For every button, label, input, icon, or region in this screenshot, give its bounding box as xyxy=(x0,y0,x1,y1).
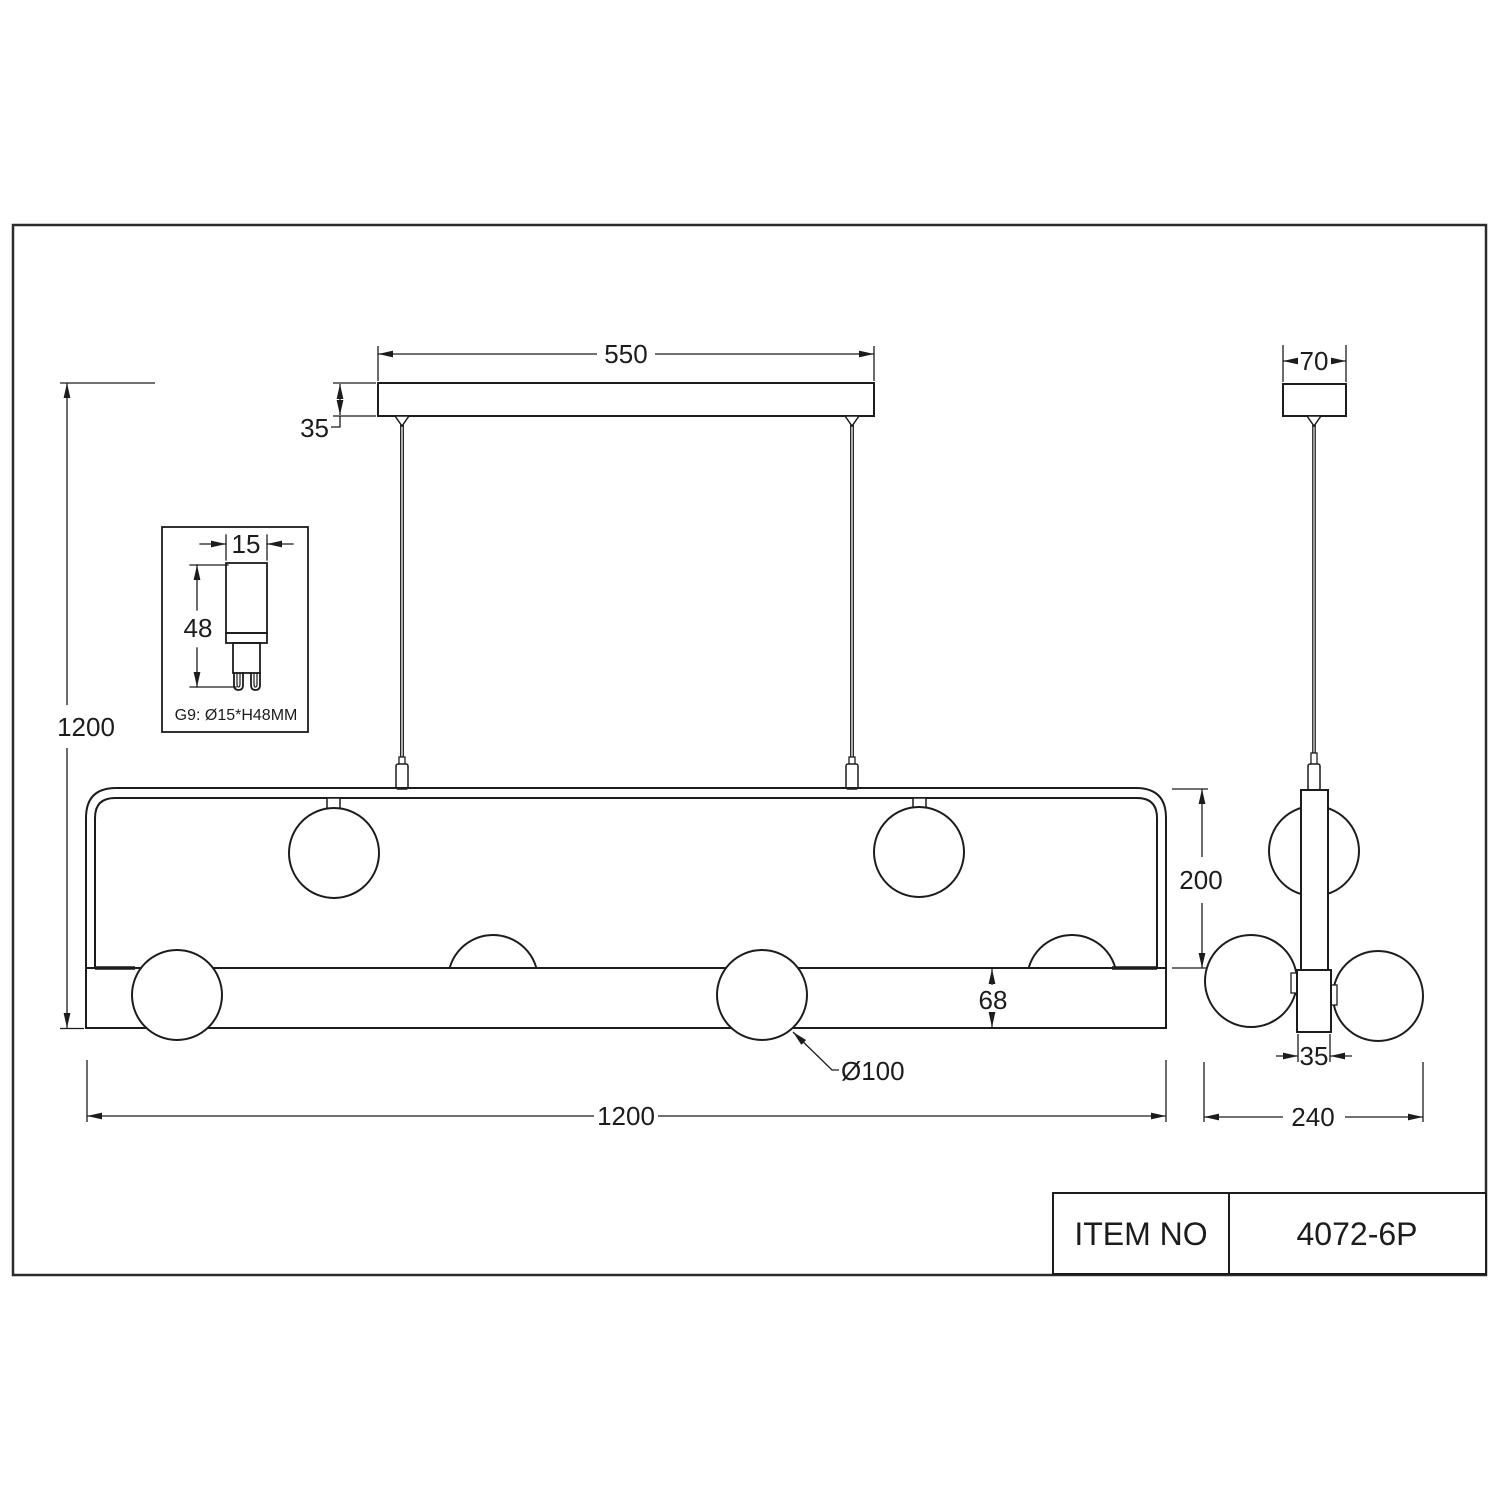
front-globe-center xyxy=(717,950,807,1040)
technical-drawing: 15 48 G9: Ø15*H48MM 550 35 xyxy=(0,0,1500,1500)
side-width-label: 240 xyxy=(1291,1102,1334,1132)
overall-height-label: 1200 xyxy=(57,712,115,742)
bulb-diameter-label: 15 xyxy=(232,529,261,559)
bulb-detail: 15 48 G9: Ø15*H48MM xyxy=(162,527,308,732)
side-globe-left xyxy=(1205,935,1297,1027)
side-view: 70 35 xyxy=(1204,345,1423,1132)
side-rod xyxy=(1301,790,1328,970)
suspension-wires xyxy=(395,416,859,789)
rod-width-label: 35 xyxy=(1300,1041,1329,1071)
bulb-caption: G9: Ø15*H48MM xyxy=(175,707,298,724)
globe-diameter-label: Ø100 xyxy=(841,1056,905,1086)
front-globe-left xyxy=(132,950,222,1040)
canopy-height-label: 35 xyxy=(300,413,329,443)
side-globe-right xyxy=(1333,951,1423,1041)
side-canopy xyxy=(1283,384,1346,416)
front-view: 550 35 xyxy=(57,339,1223,1131)
hanging-globe-right xyxy=(874,798,964,897)
bar-height-label: 68 xyxy=(979,985,1008,1015)
bulb-height-label: 48 xyxy=(184,613,213,643)
item-no-value: 4072-6P xyxy=(1297,1216,1418,1252)
g9-bulb-drawing xyxy=(226,563,267,690)
side-wire xyxy=(1307,416,1321,790)
canopy-height-dimension xyxy=(331,383,376,427)
item-no-label: ITEM NO xyxy=(1074,1216,1207,1252)
globe-diameter-leader xyxy=(793,1032,839,1070)
side-hub xyxy=(1297,970,1331,1032)
drawing-sheet: 15 48 G9: Ø15*H48MM 550 35 xyxy=(0,0,1500,1500)
frame-height-label: 200 xyxy=(1179,865,1222,895)
frame-inner xyxy=(95,798,1157,968)
side-canopy-width-label: 70 xyxy=(1300,346,1329,376)
canopy-width-label: 550 xyxy=(604,339,647,369)
overall-height-dimension xyxy=(60,383,155,1029)
front-canopy xyxy=(378,383,874,416)
frame-length-label: 1200 xyxy=(597,1101,655,1131)
hanging-globe-left xyxy=(289,798,379,898)
title-block: ITEM NO 4072-6P xyxy=(1053,1193,1486,1274)
